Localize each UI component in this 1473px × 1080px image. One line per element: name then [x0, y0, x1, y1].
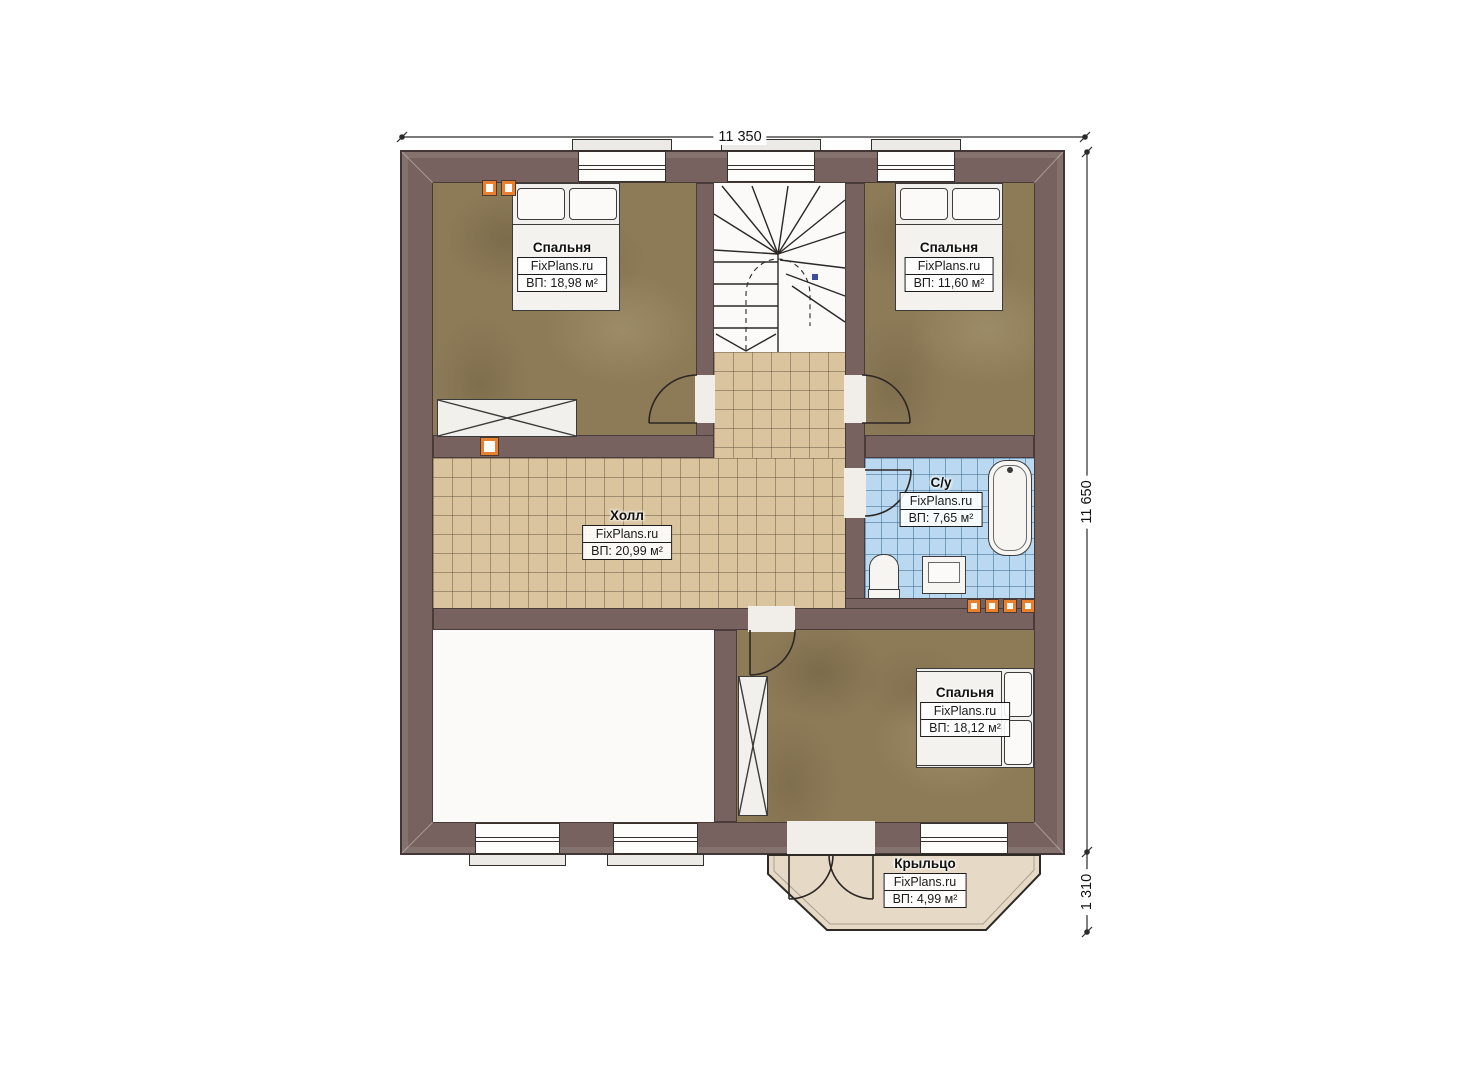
window-sill: [469, 854, 566, 866]
vent-marker: [1004, 600, 1016, 612]
site-watermark: FixPlans.ru: [885, 874, 966, 891]
window-sill: [572, 139, 672, 151]
site-watermark: FixPlans.ru: [518, 258, 606, 275]
site-watermark: FixPlans.ru: [901, 493, 982, 510]
pillow: [952, 188, 1000, 220]
vent-marker: [968, 600, 980, 612]
dimension-height: 11 650: [1079, 475, 1095, 528]
door-opening-porch: [787, 821, 875, 856]
room-area: ВП: 4,99 м²: [885, 891, 966, 907]
window-sill: [871, 139, 961, 151]
room-name: Спальня: [905, 240, 994, 255]
sink: [922, 556, 966, 594]
room-area: ВП: 7,65 м²: [901, 510, 982, 526]
room-label-bedroom-top-left: Спальня FixPlans.ru ВП: 18,98 м²: [517, 240, 607, 292]
door-opening-bedroom-bottom-right: [748, 606, 795, 632]
room-area: ВП: 11,60 м²: [906, 275, 993, 291]
pillow: [517, 188, 565, 220]
room-name: Спальня: [517, 240, 607, 255]
room-label-bedroom-bottom-right: Спальня FixPlans.ru ВП: 18,12 м²: [920, 685, 1010, 737]
site-watermark: FixPlans.ru: [583, 526, 671, 543]
window-bottom-1: [475, 823, 560, 854]
toilet-tank: [868, 589, 900, 599]
room-name: С/у: [900, 475, 983, 490]
site-watermark: FixPlans.ru: [906, 258, 993, 275]
dimension-width: 11 350: [713, 129, 766, 145]
faucet-icon: [1007, 467, 1013, 473]
pillow: [900, 188, 948, 220]
sink-basin: [928, 562, 960, 583]
room-info-box: FixPlans.ru ВП: 18,98 м²: [517, 257, 607, 292]
room-name: Крыльцо: [884, 856, 967, 871]
room-name: Спальня: [920, 685, 1010, 700]
door-opening-bathroom: [844, 468, 866, 518]
window-bottom-2: [613, 823, 698, 854]
room-label-bedroom-top-right: Спальня FixPlans.ru ВП: 11,60 м²: [905, 240, 994, 292]
door-opening-bedroom-top-right: [844, 375, 866, 423]
toilet: [869, 554, 899, 594]
dimension-porch: 1 310: [1079, 869, 1095, 915]
room-label-hall: Холл FixPlans.ru ВП: 20,99 м²: [582, 508, 672, 560]
window-sill: [607, 854, 704, 866]
room-info-box: FixPlans.ru ВП: 11,60 м²: [905, 257, 994, 292]
vent-marker: [1022, 600, 1034, 612]
porch-door-swing: [789, 855, 873, 899]
wardrobe-top-left: [437, 399, 577, 437]
site-watermark: FixPlans.ru: [921, 703, 1009, 720]
door-opening-bedroom-top-left: [695, 375, 715, 423]
room-area: ВП: 18,12 м²: [921, 720, 1009, 736]
wardrobe-bottom-right: [738, 676, 768, 816]
vent-marker: [986, 600, 998, 612]
bathtub: [988, 460, 1032, 556]
room-area: ВП: 20,99 м²: [583, 543, 671, 559]
vent-marker: [481, 438, 498, 455]
room-info-box: FixPlans.ru ВП: 7,65 м²: [900, 492, 983, 527]
window-top-1: [578, 151, 666, 182]
room-info-box: FixPlans.ru ВП: 4,99 м²: [884, 873, 967, 908]
window-top-2: [727, 151, 815, 182]
room-info-box: FixPlans.ru ВП: 18,12 м²: [920, 702, 1010, 737]
room-label-porch: Крыльцо FixPlans.ru ВП: 4,99 м²: [884, 856, 967, 908]
room-info-box: FixPlans.ru ВП: 20,99 м²: [582, 525, 672, 560]
pillow: [569, 188, 617, 220]
room-label-bathroom: С/у FixPlans.ru ВП: 7,65 м²: [900, 475, 983, 527]
bathtub-rim: [993, 465, 1027, 551]
room-area: ВП: 18,98 м²: [518, 275, 606, 291]
vent-marker: [483, 181, 496, 195]
window-bottom-3: [920, 823, 1008, 854]
window-top-3: [877, 151, 955, 182]
room-name: Холл: [582, 508, 672, 523]
floor-plan-page: { "plan": { "site": "FixPlans.ru", "dims…: [0, 0, 1473, 1080]
vent-marker: [502, 181, 515, 195]
